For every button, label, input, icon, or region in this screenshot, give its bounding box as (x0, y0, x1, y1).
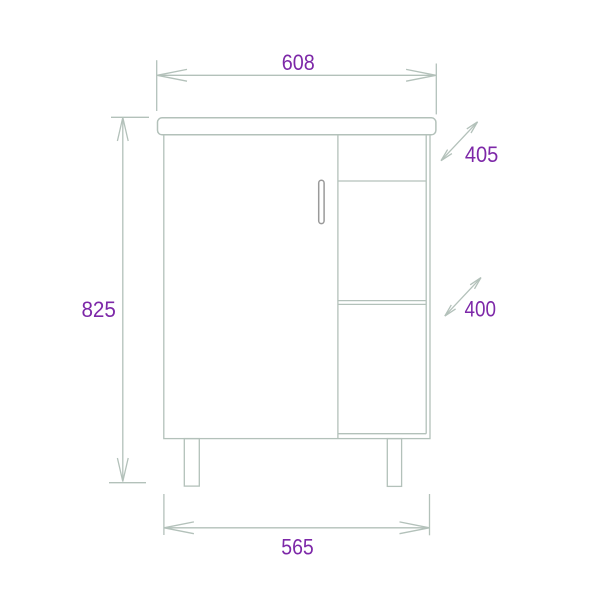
svg-text:405: 405 (465, 142, 499, 167)
svg-text:825: 825 (81, 297, 116, 322)
svg-text:608: 608 (282, 50, 315, 75)
svg-text:565: 565 (281, 534, 314, 559)
svg-text:400: 400 (465, 296, 497, 321)
